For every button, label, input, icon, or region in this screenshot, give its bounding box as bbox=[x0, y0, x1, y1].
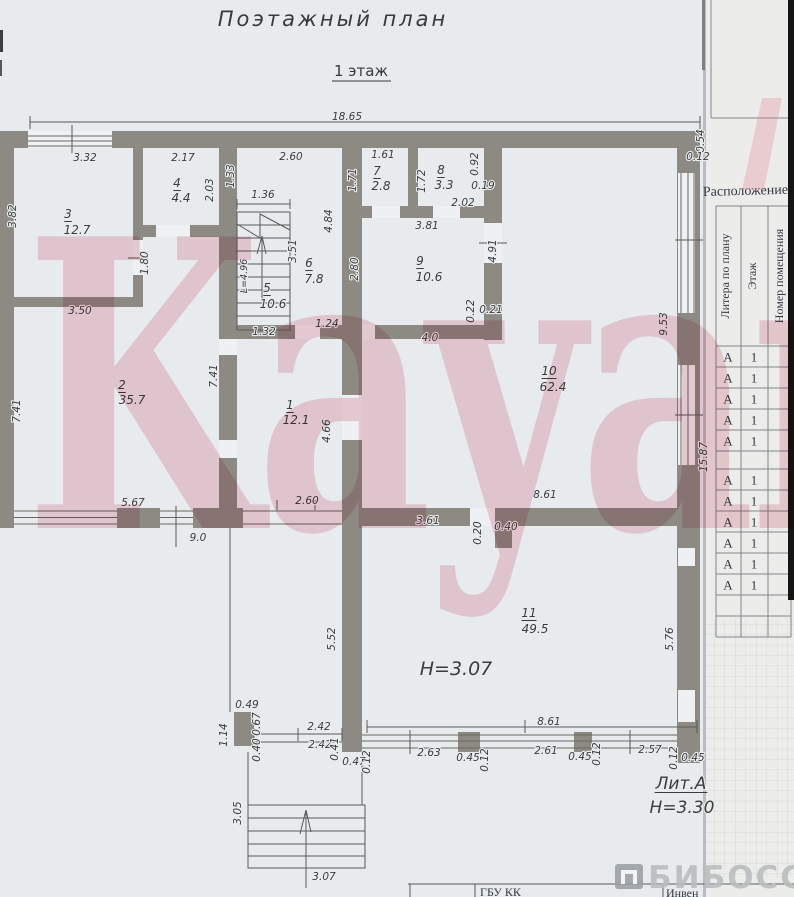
dim-label: 3.05 bbox=[232, 801, 244, 825]
scanned-floor-plan-page: { "page": { "title": "Поэтажный план", "… bbox=[0, 0, 794, 897]
dim-label: 2.42 bbox=[307, 721, 331, 733]
dim-label: 9.53 bbox=[658, 312, 670, 335]
table-cell-floor: 1 bbox=[751, 413, 758, 428]
dim-label: 3.32 bbox=[73, 152, 97, 164]
table-cell-floor: 1 bbox=[751, 494, 758, 509]
dim-label: 0.12 bbox=[686, 151, 710, 163]
column-header-room-number: Номер помещения bbox=[772, 228, 786, 323]
dim-label: 4.91 bbox=[487, 239, 499, 262]
room-area: 49.5 bbox=[522, 622, 549, 636]
dim-label: 18.65 bbox=[332, 111, 362, 123]
table-cell-litera: А bbox=[723, 536, 733, 551]
dim-label: 4.0 bbox=[422, 332, 439, 344]
room-number: 9 bbox=[416, 254, 424, 268]
dim-label: 5.67 bbox=[121, 497, 145, 509]
dim-label: 1.36 bbox=[251, 189, 275, 201]
table-cell-litera: А bbox=[723, 515, 733, 530]
scan-edge-mark bbox=[0, 60, 2, 76]
dim-label: 8.61 bbox=[533, 489, 556, 501]
room-number: 1 bbox=[286, 398, 294, 412]
table-cell-floor: 1 bbox=[751, 578, 758, 593]
page-title: Поэтажный план bbox=[218, 7, 449, 31]
room-area: 35.7 bbox=[119, 393, 146, 407]
dim-label: 3.51 bbox=[287, 239, 299, 262]
room-number: 4 bbox=[173, 176, 181, 190]
dim-label: 0.22 bbox=[465, 299, 477, 323]
table-cell-floor: 1 bbox=[751, 473, 758, 488]
dim-label: 0.12 bbox=[668, 746, 680, 770]
dim-label: 2.80 bbox=[349, 257, 361, 281]
dim-label: 2.17 bbox=[171, 152, 195, 164]
table-cell-litera: А bbox=[723, 371, 733, 386]
table-cell-floor: 1 bbox=[751, 392, 758, 407]
dim-label: 4.66 bbox=[321, 419, 333, 443]
grid-paper-texture bbox=[706, 620, 794, 878]
dim-label: 7.41 bbox=[208, 364, 220, 387]
dim-label: 0.12 bbox=[591, 742, 603, 766]
room-number: 11 bbox=[521, 606, 536, 620]
dim-label: 1.33 bbox=[225, 164, 237, 187]
room-number: 2 bbox=[118, 378, 126, 392]
dim-label: 1.61 bbox=[371, 149, 394, 161]
room-number: 7 bbox=[373, 164, 381, 178]
dim-label: 3.82 bbox=[7, 204, 19, 228]
biboss-logo-text: БИБОСС bbox=[648, 860, 794, 896]
scan-black-edge bbox=[788, 0, 794, 600]
table-cell-litera: А bbox=[723, 392, 733, 407]
room-area: 10.6 bbox=[260, 297, 287, 311]
room-area: 2.8 bbox=[371, 179, 390, 193]
dim-label: 2.02 bbox=[451, 197, 475, 209]
page-edge-dark bbox=[702, 0, 705, 70]
room-area: 7.8 bbox=[304, 272, 323, 286]
table-cell-floor: 1 bbox=[751, 350, 758, 365]
dim-label: 2.60 bbox=[279, 151, 303, 163]
column-header-litera: Литера по плану bbox=[718, 233, 732, 318]
dim-label: 2.57 bbox=[638, 744, 662, 756]
dim-label: 0.49 bbox=[235, 699, 259, 711]
table-cell-floor: 1 bbox=[751, 557, 758, 572]
dim-label: 3.50 bbox=[68, 305, 92, 317]
dim-label: 0.20 bbox=[472, 521, 484, 545]
scan-edge-mark bbox=[0, 30, 3, 52]
dim-label: 5.52 bbox=[326, 627, 338, 651]
room-area: 12.1 bbox=[283, 413, 310, 427]
table-cell-litera: А bbox=[723, 350, 733, 365]
column-header-floor: Этаж bbox=[745, 262, 759, 290]
table-cell-litera: А bbox=[723, 434, 733, 449]
floor-label: 1 этаж bbox=[334, 62, 388, 80]
table-cell-litera: А bbox=[723, 413, 733, 428]
dim-label: 0.41 bbox=[329, 737, 341, 760]
dim-label: 0.45 bbox=[568, 751, 592, 763]
dim-label: L=4.96 bbox=[239, 259, 250, 293]
room-number: 5 bbox=[263, 281, 271, 295]
dim-label: 2.61 bbox=[534, 745, 557, 757]
table-cell-litera: А bbox=[723, 473, 733, 488]
room-area: 62.4 bbox=[540, 380, 567, 394]
dim-label: 3.61 bbox=[416, 515, 439, 527]
room-number: 3 bbox=[64, 207, 72, 221]
table-cell-floor: 1 bbox=[751, 371, 758, 386]
dim-label: 8.61 bbox=[537, 716, 560, 728]
dim-label: 3.07 bbox=[312, 871, 336, 883]
biboss-logo-icon bbox=[615, 864, 643, 889]
table-cell-floor: 1 bbox=[751, 434, 758, 449]
dim-label: 0.40 bbox=[494, 521, 518, 533]
dim-label: 1.71 bbox=[347, 168, 359, 191]
dim-label: 1.72 bbox=[416, 169, 428, 193]
footer-org: ГБУ КК bbox=[480, 885, 522, 897]
room-area: 4.4 bbox=[171, 191, 190, 205]
dim-label: 0.40 bbox=[251, 738, 263, 762]
height-note-room11: Н=3.07 bbox=[420, 658, 493, 680]
dim-label: 0.45 bbox=[681, 752, 705, 764]
table-cell-litera: А bbox=[723, 557, 733, 572]
dim-label: 2.03 bbox=[204, 178, 216, 201]
dim-label: 3.81 bbox=[415, 220, 438, 232]
room-number: 6 bbox=[305, 256, 313, 270]
dim-label: 1.24 bbox=[315, 318, 338, 330]
room-area: 10.6 bbox=[416, 270, 443, 284]
dim-label: 2.63 bbox=[417, 747, 440, 759]
dim-label: 1.32 bbox=[252, 326, 276, 338]
dim-label: 0.12 bbox=[479, 748, 491, 772]
dim-label: 0.21 bbox=[479, 304, 502, 316]
table-cell-floor: 1 bbox=[751, 515, 758, 530]
dim-label: 5.76 bbox=[664, 627, 676, 651]
table-cell-litera: А bbox=[723, 578, 733, 593]
table-cell-floor: 1 bbox=[751, 536, 758, 551]
floor-plan-drawing: Поэтажный план 1 этаж bbox=[0, 0, 794, 897]
dim-label: 1.14 bbox=[218, 723, 230, 746]
room-area: 3.3 bbox=[434, 178, 453, 192]
room-number: 10 bbox=[541, 364, 557, 378]
dim-label: 9.0 bbox=[190, 532, 207, 544]
dim-label: 1.80 bbox=[139, 251, 151, 275]
dim-label: 0.54 bbox=[695, 129, 707, 152]
room-number: 8 bbox=[437, 163, 445, 177]
dim-label: 4.84 bbox=[323, 209, 335, 232]
height-note-building: Н=3.30 bbox=[650, 798, 715, 818]
dim-label: 15.87 bbox=[698, 442, 710, 472]
room-area: 12.7 bbox=[64, 223, 91, 237]
dim-label: 0.12 bbox=[361, 750, 373, 774]
dim-label: 0.19 bbox=[471, 180, 495, 192]
dim-label: 0.45 bbox=[456, 752, 480, 764]
dim-label: 7.41 bbox=[11, 399, 23, 422]
dim-label: 2.60 bbox=[295, 495, 319, 507]
dim-label: 0.92 bbox=[469, 152, 481, 176]
table-cell-litera: А bbox=[723, 494, 733, 509]
dim-label: 0.67 bbox=[251, 712, 263, 736]
litera-note: Лит.А bbox=[655, 774, 707, 794]
